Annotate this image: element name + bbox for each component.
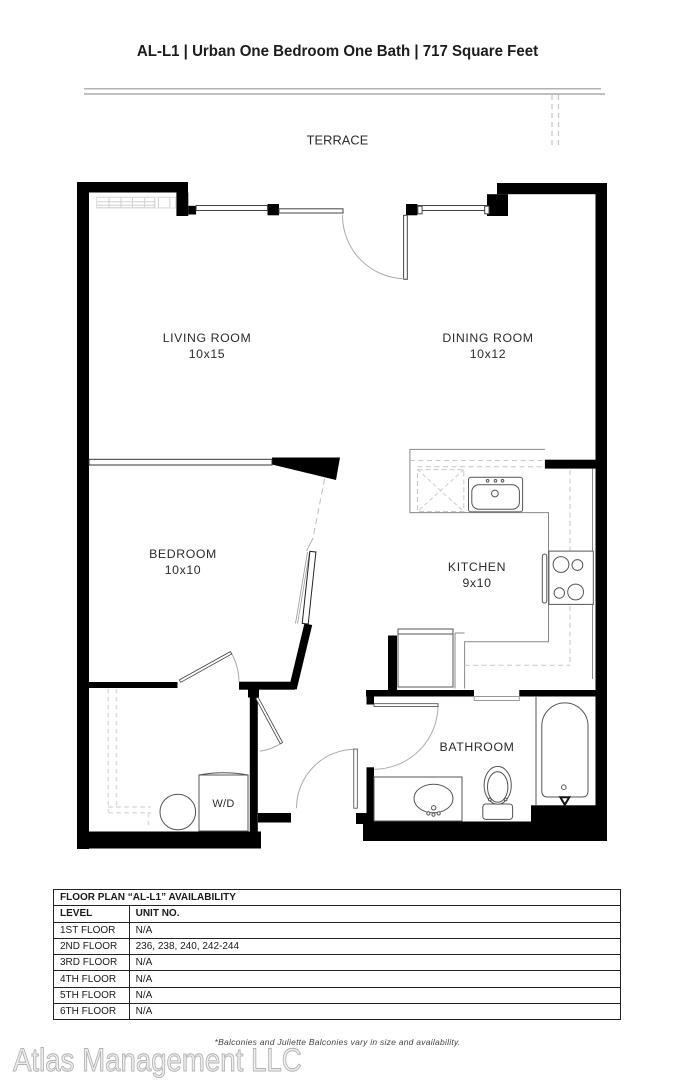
svg-text:BEDROOM: BEDROOM xyxy=(149,547,217,561)
svg-text:DINING ROOM: DINING ROOM xyxy=(442,331,533,345)
svg-text:W/D: W/D xyxy=(212,798,234,810)
svg-text:KITCHEN: KITCHEN xyxy=(448,560,506,574)
svg-text:LIVING ROOM: LIVING ROOM xyxy=(163,331,252,345)
svg-text:TERRACE: TERRACE xyxy=(307,133,369,148)
svg-text:9x10: 9x10 xyxy=(462,576,491,590)
svg-text:10x15: 10x15 xyxy=(189,347,226,361)
svg-text:10x10: 10x10 xyxy=(165,563,202,577)
svg-text:BATHROOM: BATHROOM xyxy=(440,740,515,754)
svg-text:10x12: 10x12 xyxy=(470,347,507,361)
